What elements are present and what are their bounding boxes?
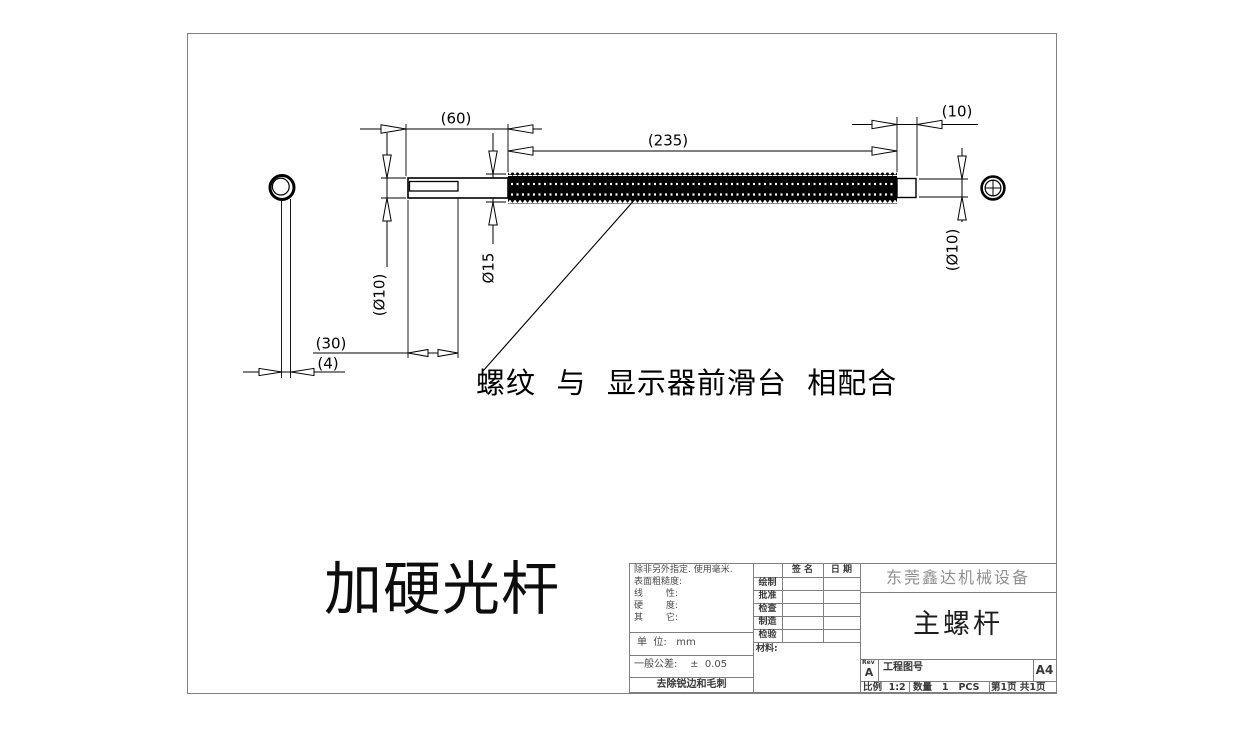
right-end-view — [982, 177, 1005, 200]
material-label: 材料: — [756, 645, 778, 655]
dim-dia10-right-label: (Ø10) — [946, 229, 961, 272]
dim-10-label: (10) — [942, 105, 973, 120]
row-approved: 批准 — [753, 592, 782, 602]
left-end-view — [270, 176, 294, 200]
paper-size: A4 — [1033, 664, 1056, 677]
part-name: 主螺杆 — [860, 610, 1056, 640]
company-name: 东莞鑫达机械设备 — [860, 569, 1056, 587]
dim-dia10-left-label: (Ø10) — [373, 274, 388, 317]
row-inspected: 检验 — [753, 631, 782, 641]
part-caption: 加硬光杆 — [324, 560, 560, 618]
date-header: 日 期 — [823, 566, 860, 576]
cad-drawing-page: (60) (235) (10) (Ø10) Ø15 (Ø10) (30) (4)… — [0, 0, 1247, 733]
dim-4-label: (4) — [317, 357, 338, 372]
scale-cell: 比例 1:2 — [863, 683, 906, 693]
notes-line-2: 表面粗糙度: — [634, 578, 682, 588]
row-drawn: 绘制 — [753, 579, 782, 589]
notes-line-4: 硬 度: — [634, 602, 678, 612]
dim-60-label: (60) — [441, 112, 472, 127]
unit-cell: 单 位: mm — [637, 637, 696, 648]
thread-section — [508, 176, 897, 200]
thread-note: 螺纹 与 显示器前滑台 相配合 — [476, 369, 897, 398]
title-block: 除非另外指定. 使用毫米. 表面粗糙度: 线 性: 硬 度: 其 它: 单 位:… — [629, 563, 1057, 693]
deburr-cell: 去除锐边和毛刺 — [630, 679, 753, 690]
tolerance-cell: 一般公差: ± 0.05 — [634, 659, 727, 670]
notes-line-3: 线 性: — [634, 590, 678, 600]
dim-30-label: (30) — [316, 337, 347, 352]
rev-value: A — [860, 667, 878, 679]
notes-line-1: 除非另外指定. 使用毫米. — [634, 566, 733, 576]
drawing-no-label: 工程图号 — [883, 662, 923, 673]
notes-line-5: 其 它: — [634, 614, 678, 624]
quantity-cell: 数量 1 PCS — [913, 683, 979, 693]
dim-dia15-label: Ø15 — [482, 253, 497, 284]
dimension-lines — [243, 125, 978, 373]
dimension-arrowheads — [259, 120, 966, 375]
leader-line — [483, 195, 639, 371]
sheet-cell: 第1页 共1页 — [991, 683, 1046, 693]
row-checked: 检查 — [753, 605, 782, 615]
row-manufactured: 制造 — [753, 618, 782, 628]
sign-header: 签 名 — [782, 566, 823, 576]
dim-235-label: (235) — [648, 134, 688, 149]
shaft-side-view — [408, 173, 916, 204]
